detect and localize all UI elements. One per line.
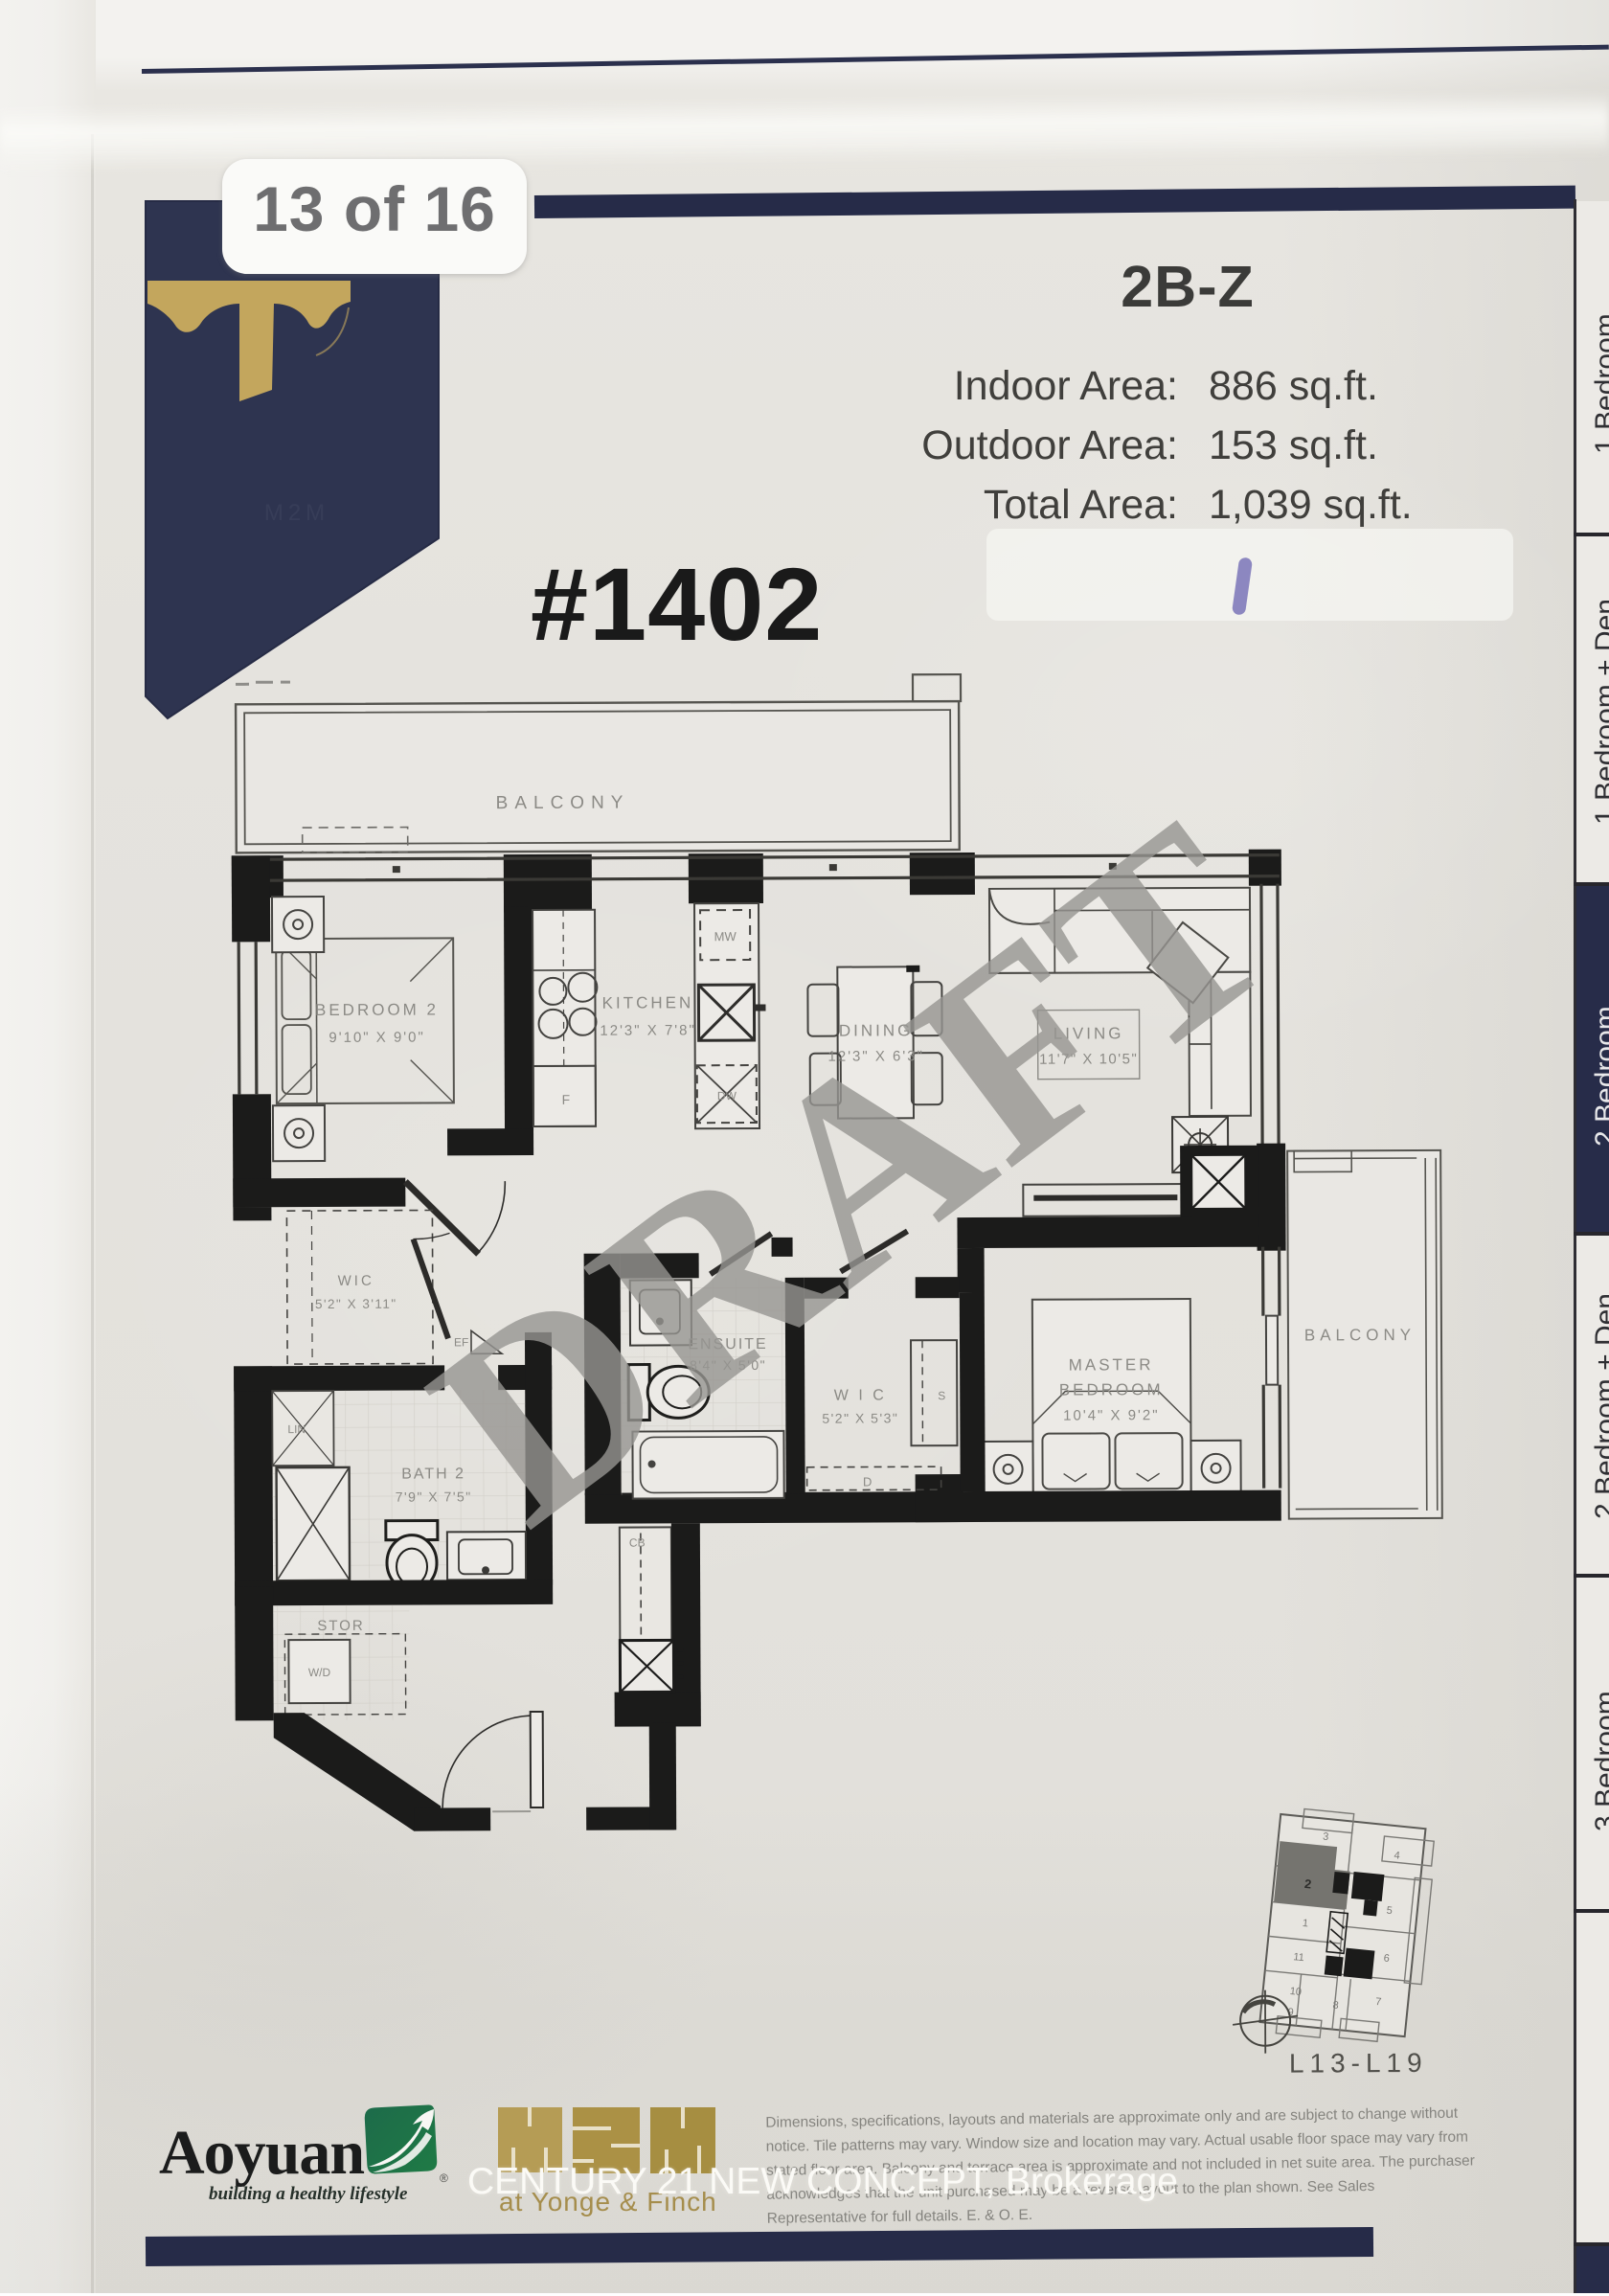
- svg-text:1: 1: [1302, 1918, 1308, 1930]
- svg-text:D: D: [863, 1474, 872, 1489]
- svg-text:3: 3: [1323, 1831, 1329, 1844]
- svg-text:BEDROOM 2: BEDROOM 2: [315, 1000, 439, 1019]
- svg-text:BATH 2: BATH 2: [401, 1466, 465, 1482]
- svg-text:®: ®: [440, 2171, 448, 2184]
- svg-text:2: 2: [1303, 1876, 1312, 1892]
- svg-text:BALCONY: BALCONY: [1304, 1326, 1416, 1345]
- svg-text:4: 4: [1394, 1850, 1400, 1862]
- svg-text:5'2" X 5'3": 5'2" X 5'3": [822, 1410, 898, 1425]
- svg-text:8: 8: [1332, 1999, 1339, 2012]
- svg-text:BEDROOM: BEDROOM: [1059, 1380, 1164, 1398]
- svg-text:10: 10: [1289, 1986, 1302, 1998]
- svg-text:BALCONY: BALCONY: [496, 793, 630, 814]
- svg-text:W I C: W I C: [834, 1387, 887, 1403]
- svg-text:CB: CB: [629, 1536, 646, 1550]
- svg-text:12'3" X 7'8": 12'3" X 7'8": [600, 1022, 696, 1038]
- svg-text:MASTER: MASTER: [1069, 1355, 1154, 1374]
- svg-text:F: F: [562, 1092, 571, 1107]
- svg-text:11: 11: [1293, 1951, 1305, 1964]
- svg-text:S: S: [938, 1389, 945, 1402]
- svg-text:7'9" X 7'5": 7'9" X 7'5": [396, 1489, 472, 1504]
- svg-text:6: 6: [1383, 1953, 1390, 1966]
- svg-text:LIN: LIN: [287, 1422, 306, 1436]
- svg-text:5'2" X 3'11": 5'2" X 3'11": [315, 1297, 397, 1311]
- svg-text:5: 5: [1386, 1905, 1393, 1918]
- svg-text:KITCHEN: KITCHEN: [602, 993, 694, 1012]
- svg-text:10'4" X 9'2": 10'4" X 9'2": [1063, 1407, 1160, 1423]
- svg-text:L13-L19: L13-L19: [1289, 2048, 1428, 2079]
- svg-text:STOR: STOR: [317, 1618, 364, 1634]
- svg-text:W/D: W/D: [308, 1666, 331, 1679]
- svg-text:MW: MW: [714, 929, 737, 943]
- svg-text:9'10" X 9'0": 9'10" X 9'0": [329, 1030, 425, 1046]
- svg-text:7: 7: [1375, 1996, 1382, 2009]
- svg-text:WIC: WIC: [338, 1273, 374, 1289]
